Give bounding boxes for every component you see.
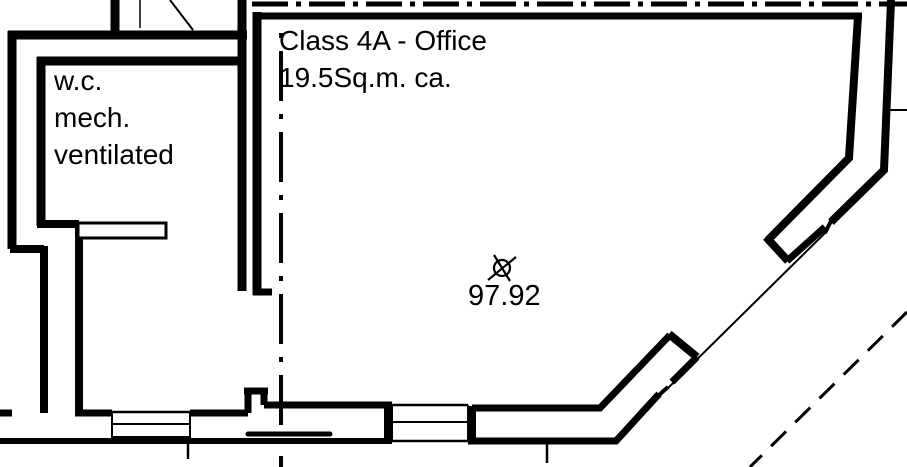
office-area-label: 19.5Sq.m. ca. bbox=[279, 61, 452, 95]
lower-angled-wall bbox=[472, 334, 697, 441]
upper-room-walls bbox=[115, 0, 193, 33]
floor-plan: Class 4A - Office 19.5Sq.m. ca. w.c. mec… bbox=[0, 0, 907, 467]
office-room-label: Class 4A - Office bbox=[279, 24, 487, 58]
wc-counter bbox=[78, 223, 166, 238]
window-2 bbox=[392, 405, 468, 441]
survey-benchmark-icon bbox=[488, 255, 516, 281]
wc-room-label: w.c. mech. ventilated bbox=[54, 62, 174, 173]
window-1 bbox=[112, 412, 190, 438]
dashed-diagonal-line bbox=[750, 312, 907, 467]
bottom-wall bbox=[0, 390, 659, 463]
benchmark-elevation-value: 97.92 bbox=[468, 280, 541, 312]
right-wall bbox=[766, 0, 907, 261]
